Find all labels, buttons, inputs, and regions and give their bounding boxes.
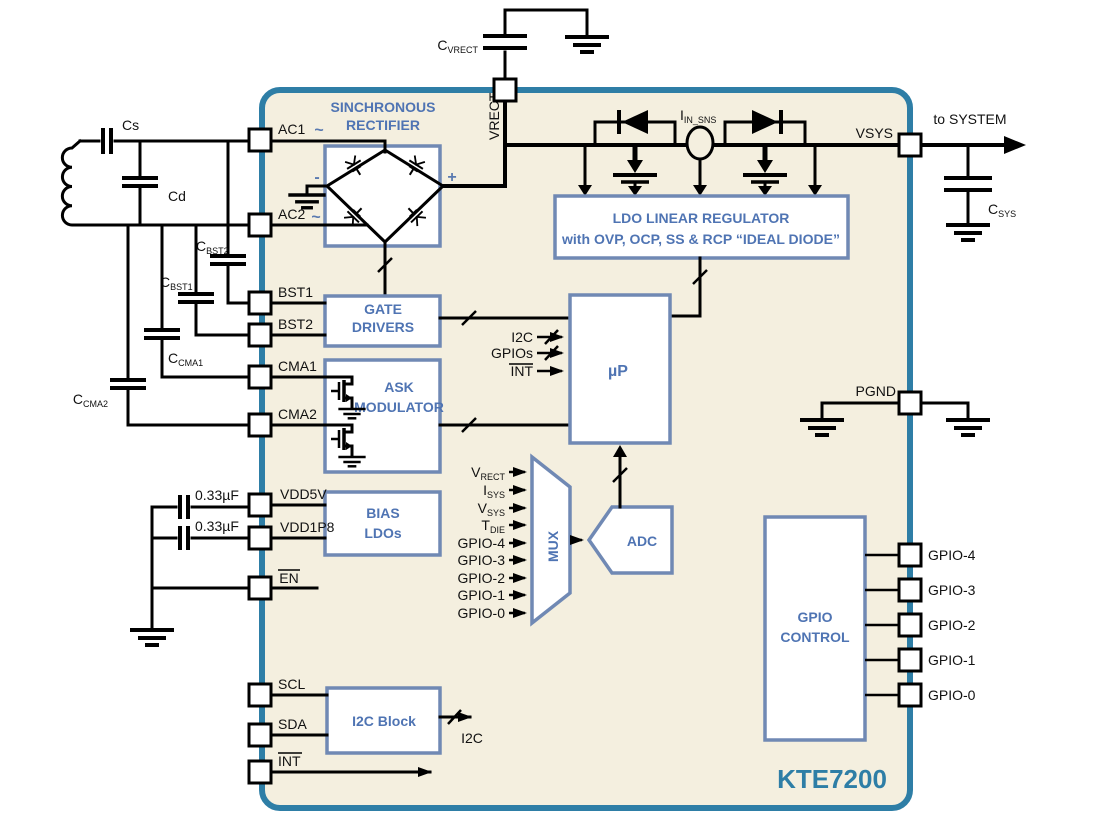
- vsys-output-network: to SYSTEM CSYS: [921, 111, 1026, 240]
- bias-title-1: BIAS: [366, 505, 399, 521]
- cbst1-label: CBST1: [160, 274, 193, 292]
- i2c-in-label: I2C: [511, 329, 533, 345]
- pin-label-ac2: AC2: [278, 206, 305, 222]
- ask-title-2: MODULATOR: [354, 399, 444, 415]
- csys-label: CSYS: [988, 201, 1016, 219]
- cap-vdd5v-label: 0.33µF: [195, 487, 239, 503]
- pin-label-scl: SCL: [278, 676, 305, 692]
- pin-en: [249, 577, 271, 599]
- bias-decoupling-network: 0.33µF 0.33µF: [130, 487, 249, 645]
- pin-label-vdd5v: VDD5V: [280, 486, 327, 502]
- mux-input-label: GPIO-1: [458, 587, 506, 603]
- pin-label-gpio4: GPIO-4: [928, 547, 976, 563]
- rectifier-title-1: SINCHRONOUS: [330, 99, 435, 115]
- ldo-title-1: LDO LINEAR REGULATOR: [613, 210, 790, 226]
- ldo-box: [555, 196, 848, 258]
- ac2-tilde: ~: [311, 209, 320, 226]
- gpio-title-2: CONTROL: [780, 629, 850, 645]
- to-system-label: to SYSTEM: [933, 111, 1006, 127]
- chip-name: KTE7200: [777, 764, 887, 794]
- pin-vrect: [494, 79, 516, 101]
- pin-bst2: [249, 324, 271, 346]
- cvrect-label: CVRECT: [437, 37, 478, 55]
- pin-label-vsys: VSYS: [856, 125, 893, 141]
- mux-input-label: GPIO-3: [458, 552, 506, 568]
- pin-vdd1p8: [249, 527, 271, 549]
- kte7200-block-diagram: KTE7200 CVRECT Cs Cd CBST2 CBST1 CCM: [0, 0, 1095, 818]
- block-diagram-canvas: KTE7200 CVRECT Cs Cd CBST2 CBST1 CCM: [0, 0, 1095, 818]
- cap-vdd1p8-label: 0.33µF: [195, 518, 239, 534]
- pin-label-cma1: CMA1: [278, 358, 317, 374]
- gate-drivers-title-2: DRIVERS: [352, 319, 414, 335]
- left-resonant-network: Cs Cd CBST2 CBST1 CCMA1 CCMA2: [62, 117, 249, 425]
- ac1-tilde: ~: [314, 122, 323, 139]
- ccma2-label: CCMA2: [73, 391, 108, 409]
- pin-label-cma2: CMA2: [278, 406, 317, 422]
- pin-ac1: [249, 129, 271, 151]
- pin-pgnd: [899, 392, 921, 414]
- pin-label-bst1: BST1: [278, 284, 313, 300]
- ccma1-label: CCMA1: [168, 350, 203, 368]
- mux-input-label: GPIO-2: [458, 570, 506, 586]
- pin-scl: [249, 684, 271, 706]
- rectifier-title-2: RECTIFIER: [346, 117, 420, 133]
- i2c-out-label: I2C: [461, 730, 483, 746]
- pin-label-gpio3: GPIO-3: [928, 582, 976, 598]
- ground-symbol: [946, 420, 990, 435]
- cs-label: Cs: [122, 117, 139, 133]
- adc-label: ADC: [627, 533, 657, 549]
- mux-input-label: GPIO-4: [458, 535, 506, 551]
- pin-gpio2: [899, 614, 921, 636]
- cd-label: Cd: [168, 188, 186, 204]
- coil: [62, 141, 80, 225]
- mux-label: MUX: [545, 530, 561, 562]
- bias-ldos-box: [325, 492, 440, 555]
- pin-gpio3: [899, 579, 921, 601]
- ask-title-1: ASK: [384, 379, 414, 395]
- pin-label-bst2: BST2: [278, 316, 313, 332]
- pin-ac2: [249, 214, 271, 236]
- pin-label-gpio1: GPIO-1: [928, 652, 976, 668]
- ground-symbol: [130, 630, 174, 645]
- pin-gpio1: [899, 649, 921, 671]
- int-in-label: INT: [510, 363, 533, 379]
- ground-symbol: [946, 225, 990, 240]
- pin-label-vdd1p8: VDD1P8: [280, 519, 335, 535]
- pin-cma2: [249, 414, 271, 436]
- mux-input-label: GPIO-0: [458, 605, 506, 621]
- microprocessor-label: µP: [608, 363, 628, 380]
- pin-gpio4: [899, 544, 921, 566]
- gpio-title-1: GPIO: [797, 609, 832, 625]
- gpios-in-label: GPIOs: [491, 345, 533, 361]
- pin-sda: [249, 724, 271, 746]
- pin-vdd5v: [249, 494, 271, 516]
- pin-gpio0: [899, 684, 921, 706]
- pin-label-ac1: AC1: [278, 121, 305, 137]
- bridge-plus: +: [447, 169, 456, 186]
- pgnd-label: PGND: [856, 383, 896, 399]
- pin-label-gpio0: GPIO-0: [928, 687, 976, 703]
- pin-int: [249, 761, 271, 783]
- pin-vsys: [899, 134, 921, 156]
- pin-label-en: EN: [279, 570, 298, 586]
- pin-label-int: INT: [278, 753, 301, 769]
- pin-bst1: [249, 292, 271, 314]
- gate-drivers-title-1: GATE: [364, 301, 402, 317]
- rectifier-box: [325, 146, 440, 246]
- pin-label-sda: SDA: [278, 716, 307, 732]
- bridge-minus: -: [314, 169, 319, 186]
- cbst2-label: CBST2: [196, 238, 229, 256]
- pin-cma1: [249, 366, 271, 388]
- bias-title-2: LDOs: [364, 525, 402, 541]
- ldo-title-2: with OVP, OCP, SS & RCP “IDEAL DIODE”: [561, 231, 840, 247]
- ground-symbol: [565, 37, 609, 52]
- i2c-block-label: I2C Block: [352, 713, 416, 729]
- to-system-arrow: [1004, 136, 1026, 154]
- pin-label-gpio2: GPIO-2: [928, 617, 976, 633]
